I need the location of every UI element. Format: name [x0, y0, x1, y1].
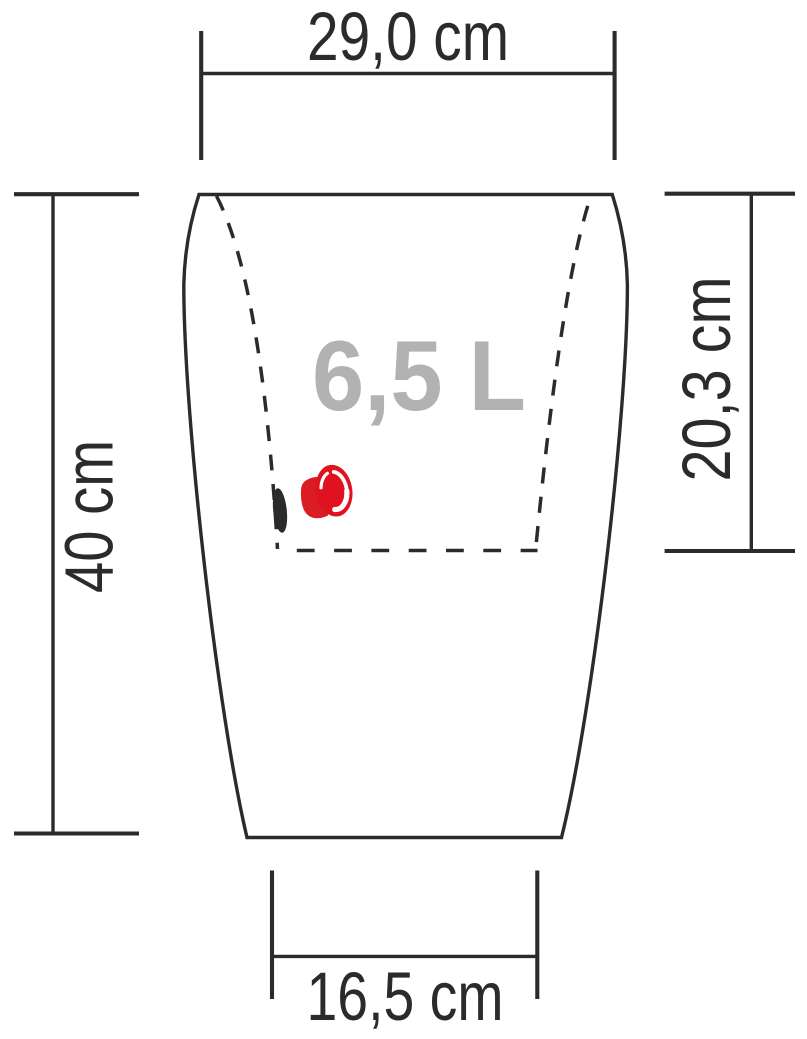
svg-text:6,5 L: 6,5 L: [312, 321, 526, 432]
svg-text:20,3 cm: 20,3 cm: [668, 277, 745, 482]
svg-text:16,5 cm: 16,5 cm: [307, 958, 504, 1035]
svg-text:40 cm: 40 cm: [51, 440, 128, 593]
svg-text:29,0 cm: 29,0 cm: [307, 0, 509, 75]
